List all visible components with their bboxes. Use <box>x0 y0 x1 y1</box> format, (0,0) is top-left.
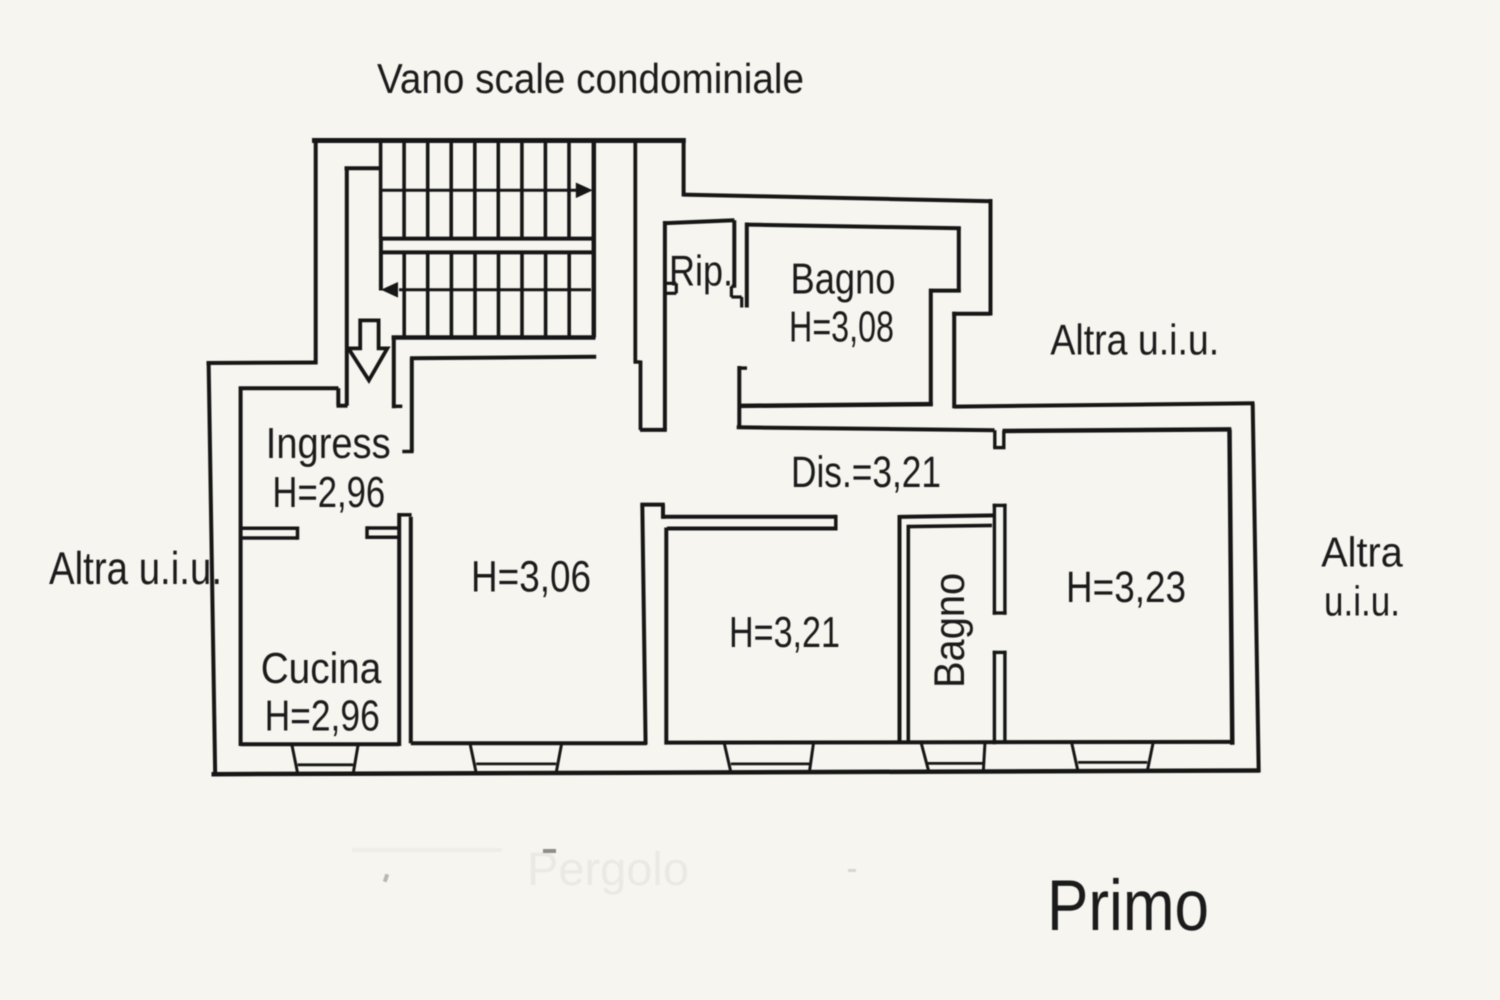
svg-text:Cucina: Cucina <box>261 645 382 693</box>
svg-text:Vano scale condominiale: Vano scale condominiale <box>377 55 804 102</box>
svg-text:H=3,08: H=3,08 <box>789 304 894 352</box>
svg-text:Primo: Primo <box>1047 866 1209 946</box>
svg-text:H=2,96: H=2,96 <box>272 469 385 517</box>
svg-text:u.i.u.: u.i.u. <box>1324 578 1400 625</box>
svg-text:Altra u.i.u.: Altra u.i.u. <box>1050 317 1219 365</box>
svg-text:Altra u.i.u.: Altra u.i.u. <box>49 542 222 594</box>
svg-text:H=3,06: H=3,06 <box>471 553 591 602</box>
svg-text:Bagno: Bagno <box>791 256 896 304</box>
svg-text:Bagno: Bagno <box>926 573 974 688</box>
svg-text:H=2,96: H=2,96 <box>265 693 380 741</box>
svg-text:Ingress: Ingress <box>266 420 391 468</box>
svg-text:H=3,23: H=3,23 <box>1066 563 1186 612</box>
svg-text:Dis.=3,21: Dis.=3,21 <box>791 448 941 497</box>
svg-text:H=3,21: H=3,21 <box>729 609 840 657</box>
svg-text:Rip.: Rip. <box>669 248 733 296</box>
svg-text:Altra: Altra <box>1321 529 1403 576</box>
